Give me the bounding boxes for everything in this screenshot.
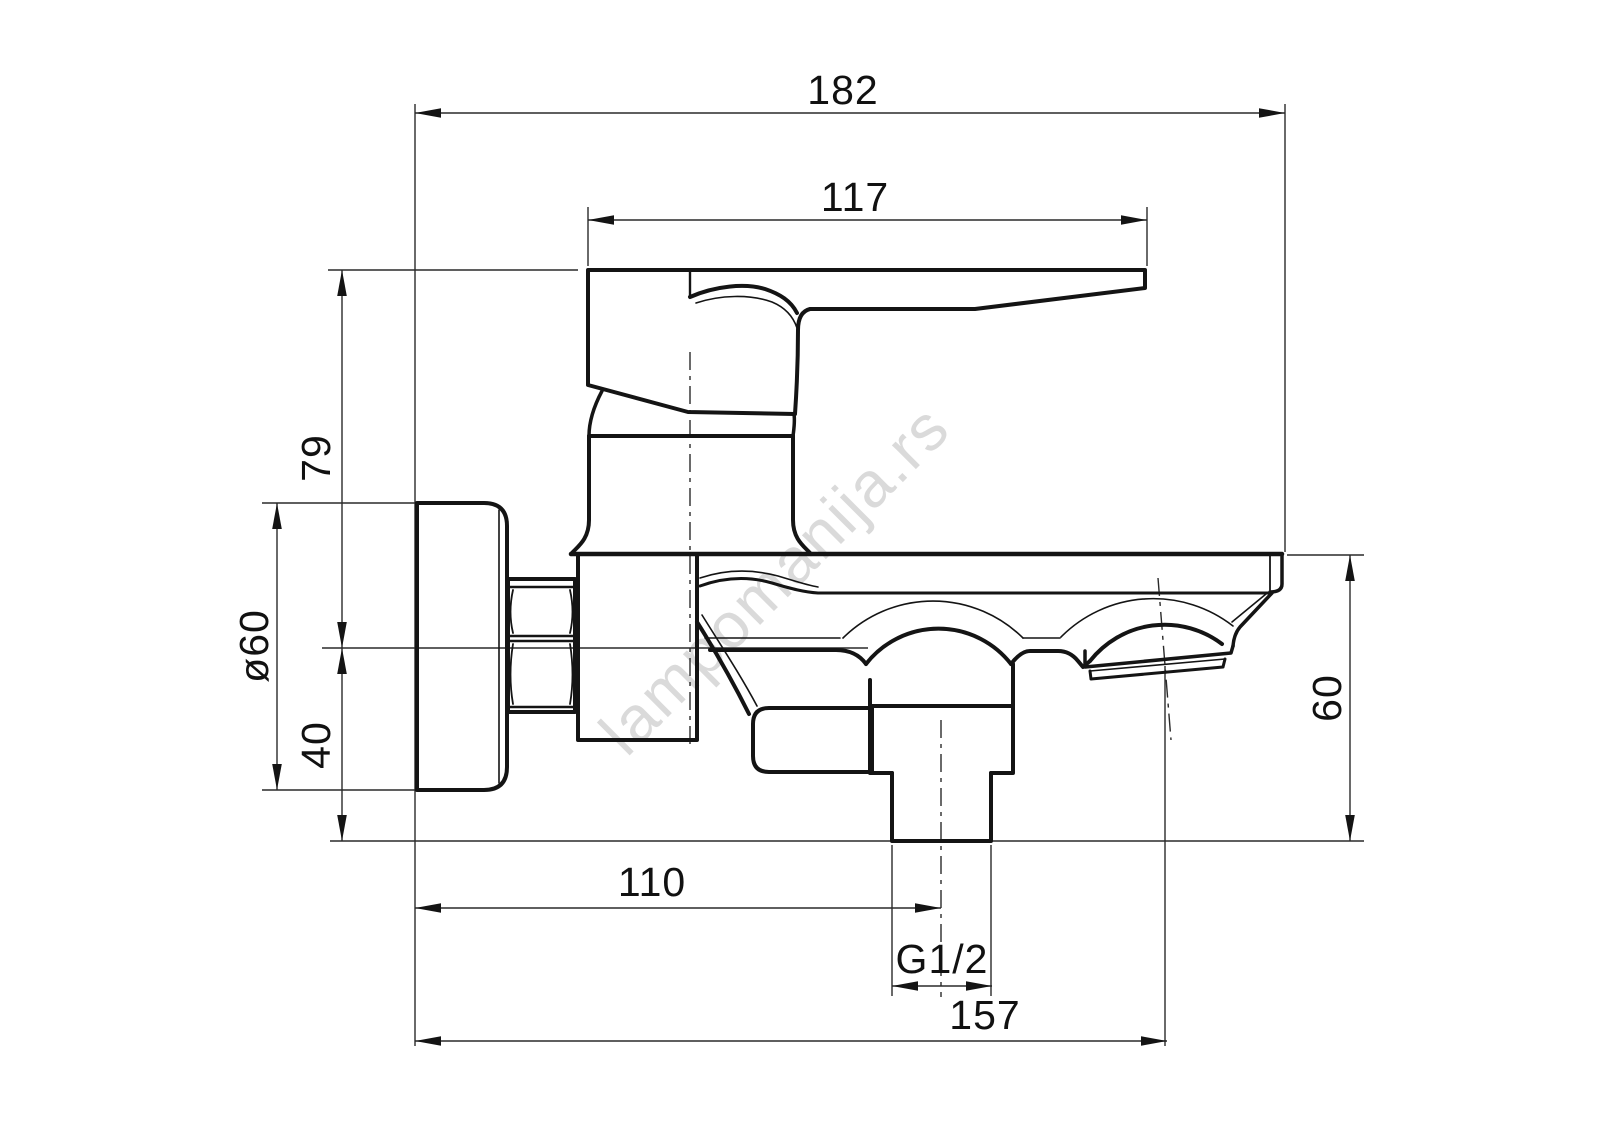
arrow-40-bottom — [337, 815, 347, 841]
wall-flange — [417, 503, 507, 790]
arrow-110-left — [415, 903, 441, 913]
dim-label-wall-to-outlet: 110 — [618, 859, 686, 905]
neck-right-edge — [793, 414, 794, 436]
dim-label-spout-drop: 60 — [1304, 674, 1350, 722]
dim-label-wall-to-spout-end: 157 — [949, 992, 1020, 1038]
underbody-ledge-right — [1011, 651, 1090, 667]
arrow-157-right — [1141, 1036, 1167, 1046]
arrow-79-top — [337, 270, 347, 296]
arrow-40-top — [337, 648, 347, 674]
faucet-dimension-drawing: lampomanija.rs — [0, 0, 1600, 1131]
faucet-outline — [417, 270, 1282, 841]
arrow-d60-top — [272, 503, 282, 529]
middle-arch-inner — [866, 629, 1011, 664]
spout-tip-chamfer — [1233, 593, 1272, 646]
aerator-body — [1085, 646, 1233, 667]
dim-label-handle-height: 79 — [293, 434, 339, 482]
arrow-d60-bottom — [272, 764, 282, 790]
hex-nut-facets — [511, 590, 573, 704]
dim-label-handle-length: 117 — [821, 174, 889, 220]
arrow-60-bottom — [1345, 815, 1355, 841]
arrow-g12-right — [966, 981, 992, 991]
dim-label-thread-size: G1/2 — [896, 936, 989, 982]
middle-arch-outer — [843, 601, 1023, 638]
technical-drawing-canvas: lampomanija.rs — [0, 0, 1600, 1131]
arrow-110-right — [915, 903, 941, 913]
arrow-117-right — [1121, 215, 1147, 225]
arrow-182-left — [415, 108, 441, 118]
dim-label-axis-to-bottom: 40 — [293, 721, 339, 769]
arrow-117-left — [588, 215, 614, 225]
arrow-60-top — [1345, 555, 1355, 581]
hex-nut-bands — [508, 587, 575, 707]
arrow-157-left — [415, 1036, 441, 1046]
handle-grip-inner-line — [696, 296, 797, 328]
dim-label-flange-diameter: ø60 — [231, 609, 277, 683]
dim-label-overall-depth: 182 — [807, 67, 878, 113]
arrow-g12-left — [892, 981, 918, 991]
spout-cap-outer — [1270, 554, 1282, 592]
arrow-79-bottom — [337, 622, 347, 648]
right-arch-outer — [1061, 599, 1233, 637]
neck-left-edge — [589, 391, 602, 436]
arrow-182-right — [1259, 108, 1285, 118]
diverter-knob — [753, 708, 872, 772]
cartridge-ring-left — [571, 436, 589, 554]
hex-nut — [508, 579, 575, 712]
handle-lever — [588, 270, 1145, 414]
watermark-text: lampomanija.rs — [586, 391, 964, 769]
